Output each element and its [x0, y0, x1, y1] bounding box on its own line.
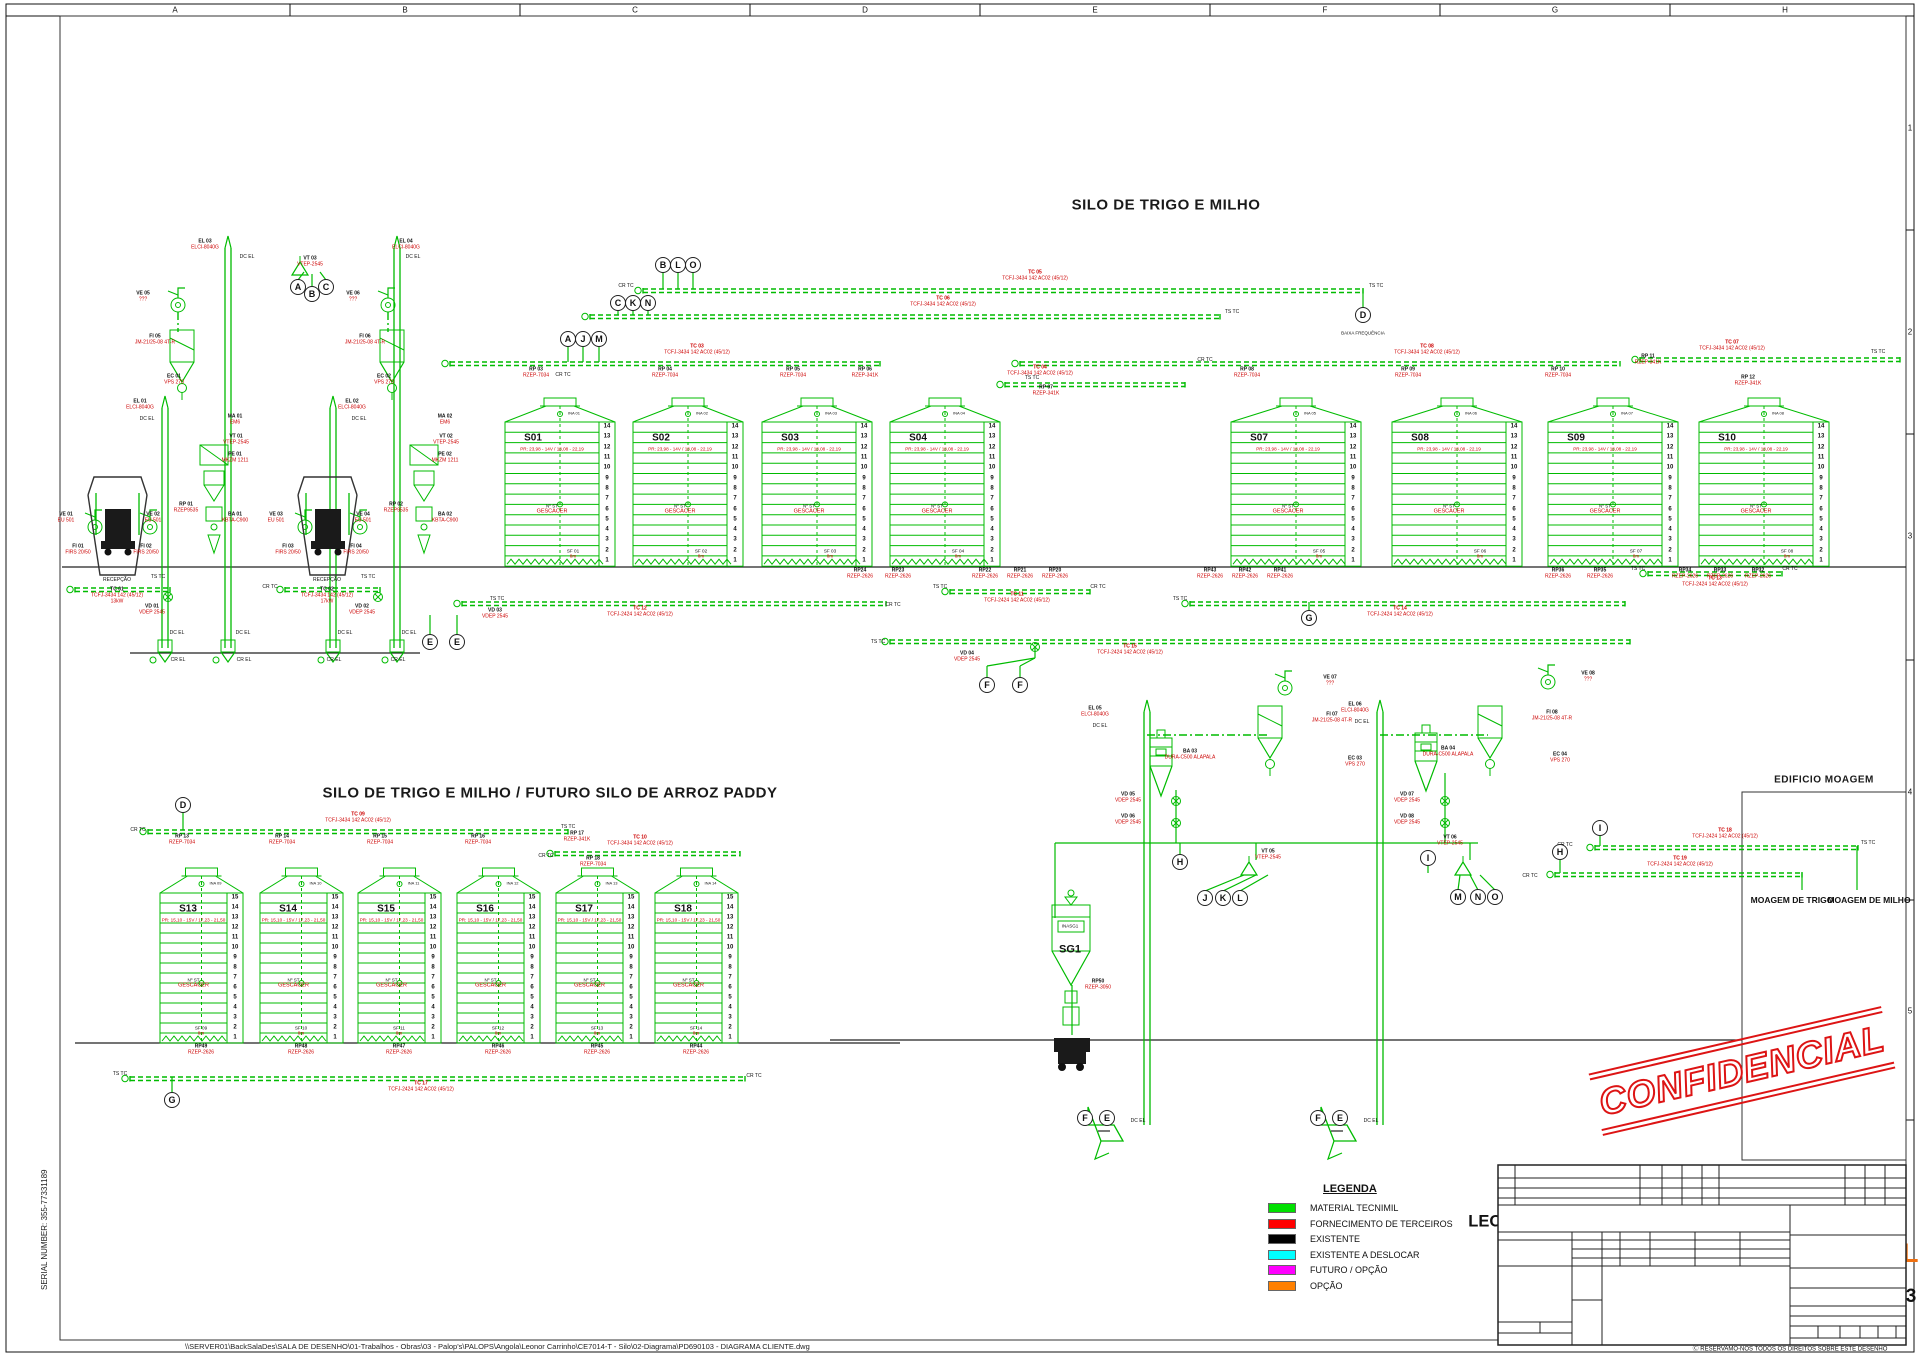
drawing-sheet: ABCDEFGH123451413121110987654321S01PR: 2…: [0, 0, 1920, 1357]
